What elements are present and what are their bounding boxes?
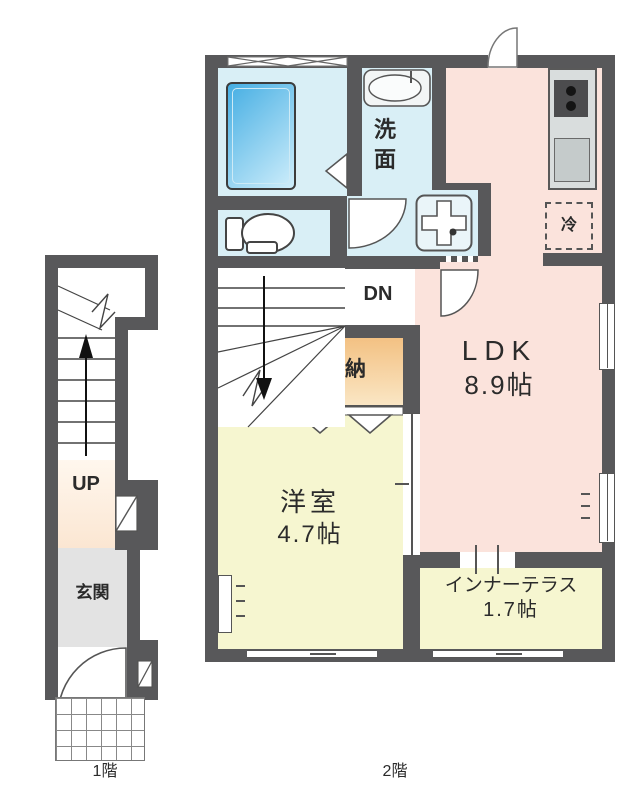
window-dash bbox=[236, 600, 245, 602]
wall-segment bbox=[515, 552, 602, 568]
window-dash bbox=[581, 505, 590, 507]
western-label-group: 洋室 4.7帖 bbox=[235, 488, 385, 548]
wall-segment bbox=[543, 253, 602, 266]
stove-icon bbox=[554, 80, 588, 117]
louver-window-icon bbox=[228, 57, 347, 66]
washroom-label: 洗面 bbox=[365, 115, 405, 174]
window-icon bbox=[115, 495, 138, 532]
western-name: 洋室 bbox=[235, 488, 385, 518]
wall-segment bbox=[432, 183, 491, 190]
western-size: 4.7帖 bbox=[235, 521, 385, 549]
terrace-opening bbox=[460, 552, 515, 568]
sink-icon bbox=[363, 69, 431, 107]
wall-segment bbox=[403, 325, 420, 413]
stairs-up-label: UP bbox=[60, 473, 112, 496]
window-icon bbox=[599, 473, 615, 543]
wall-segment bbox=[330, 196, 347, 258]
washer-pan-icon bbox=[415, 194, 473, 252]
wall-segment bbox=[478, 190, 491, 256]
window-icon bbox=[137, 660, 153, 688]
wall-segment bbox=[347, 68, 362, 196]
terrace-size: 1.7帖 bbox=[427, 599, 595, 622]
window-icon bbox=[247, 650, 377, 658]
floor1-plan: UP 玄関 bbox=[45, 255, 158, 700]
stairs-down-label: DN bbox=[347, 283, 409, 306]
entrance-label: 玄関 bbox=[58, 583, 127, 603]
wall-segment bbox=[403, 556, 420, 649]
ldk-size: 8.9帖 bbox=[427, 371, 572, 401]
wall-segment bbox=[432, 68, 446, 183]
wall-segment bbox=[115, 317, 158, 330]
stairs-icon bbox=[218, 268, 345, 427]
ldk-name: LDK bbox=[427, 335, 572, 367]
porch-tiles bbox=[55, 697, 145, 761]
floor2-caption: 2階 bbox=[352, 763, 438, 781]
wall-segment bbox=[45, 255, 58, 700]
window-icon bbox=[599, 303, 615, 370]
terrace-opening-tick bbox=[475, 545, 477, 574]
bathtub-icon bbox=[226, 82, 296, 190]
window-icon bbox=[218, 575, 232, 633]
ldk-label-group: LDK 8.9帖 bbox=[427, 335, 572, 401]
door-arc-icon bbox=[348, 198, 408, 250]
sliding-door-tick bbox=[395, 483, 409, 485]
wall-segment bbox=[45, 255, 158, 268]
window-dash bbox=[236, 615, 245, 617]
door-arc-icon bbox=[488, 27, 518, 68]
stairs-icon bbox=[58, 268, 115, 460]
bath-door-icon bbox=[325, 153, 349, 189]
wall-segment bbox=[205, 55, 218, 662]
window-dash bbox=[236, 585, 245, 587]
floor1-caption: 1階 bbox=[62, 763, 148, 781]
fridge-space: 冷 bbox=[545, 202, 593, 250]
window-icon bbox=[433, 650, 563, 658]
kitchen-sink-icon bbox=[554, 138, 590, 182]
terrace-label-group: インナーテラス 1.7帖 bbox=[427, 575, 595, 622]
terrace-opening-tick bbox=[497, 545, 499, 574]
terrace-name: インナーテラス bbox=[427, 575, 595, 597]
wall-segment bbox=[127, 550, 140, 647]
toilet-icon bbox=[225, 212, 299, 256]
wall-segment bbox=[420, 552, 460, 568]
fridge-label: 冷 bbox=[547, 217, 591, 235]
window-dash bbox=[581, 493, 590, 495]
door-arc-icon bbox=[440, 269, 480, 319]
floor2-plan: 収納 bbox=[205, 55, 615, 662]
wall-segment bbox=[115, 330, 128, 490]
threshold-dashes bbox=[440, 256, 478, 262]
wall-segment bbox=[218, 196, 347, 210]
floor-plan-canvas: 収納 bbox=[0, 0, 640, 800]
window-dash bbox=[581, 517, 590, 519]
